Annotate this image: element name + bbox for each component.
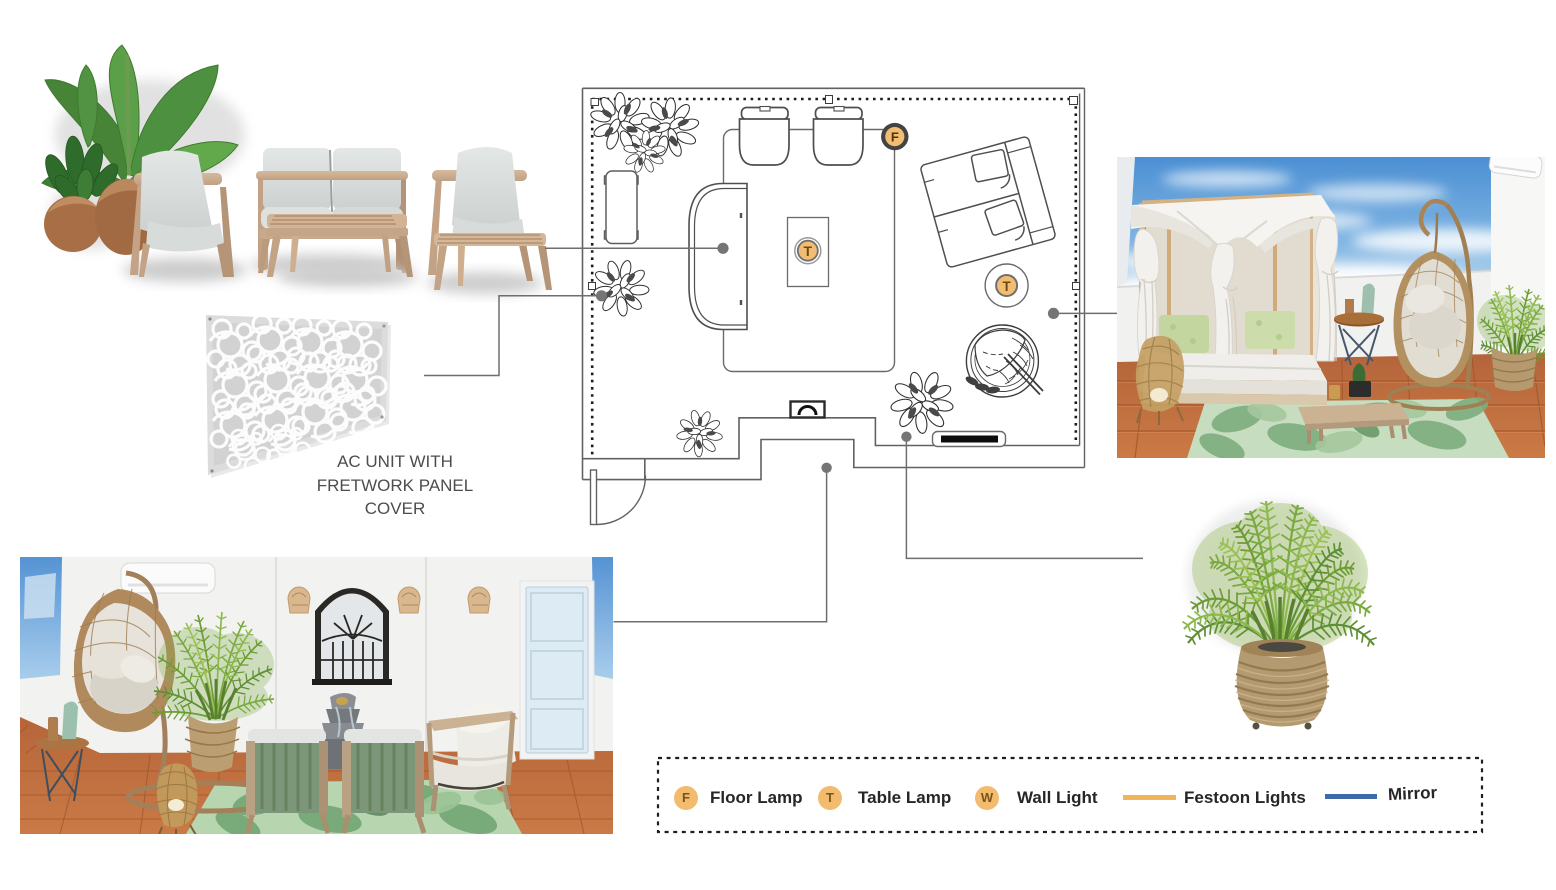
svg-text:F: F (891, 130, 899, 145)
svg-text:T: T (1002, 279, 1011, 294)
svg-text:T: T (804, 243, 813, 259)
